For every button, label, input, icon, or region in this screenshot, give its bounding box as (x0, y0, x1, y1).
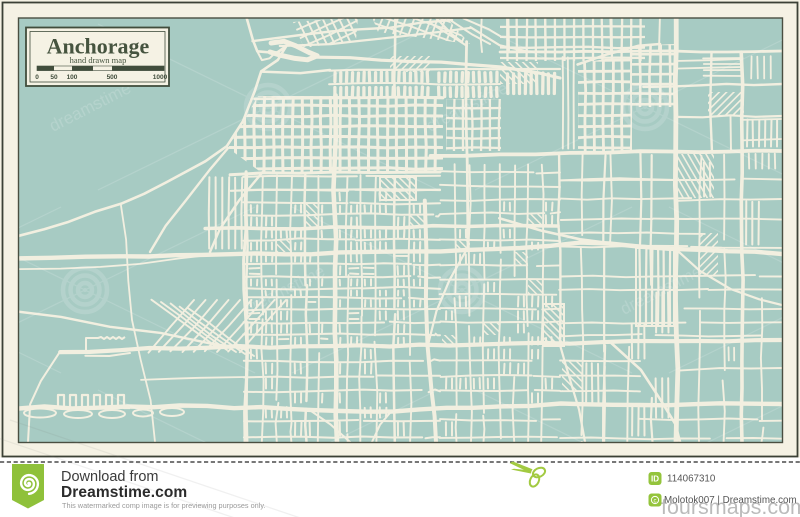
svg-text:100: 100 (67, 74, 78, 81)
svg-text:500: 500 (107, 74, 118, 81)
svg-text:50: 50 (50, 74, 58, 81)
svg-text:0: 0 (35, 74, 39, 81)
svg-text:c: c (654, 498, 657, 504)
svg-text:foursmaps.com: foursmaps.com (661, 495, 800, 517)
svg-text:114067310: 114067310 (667, 474, 716, 485)
svg-text:ID: ID (651, 475, 659, 484)
svg-text:hand drawn map: hand drawn map (70, 55, 127, 65)
svg-text:1000: 1000 (153, 74, 168, 81)
